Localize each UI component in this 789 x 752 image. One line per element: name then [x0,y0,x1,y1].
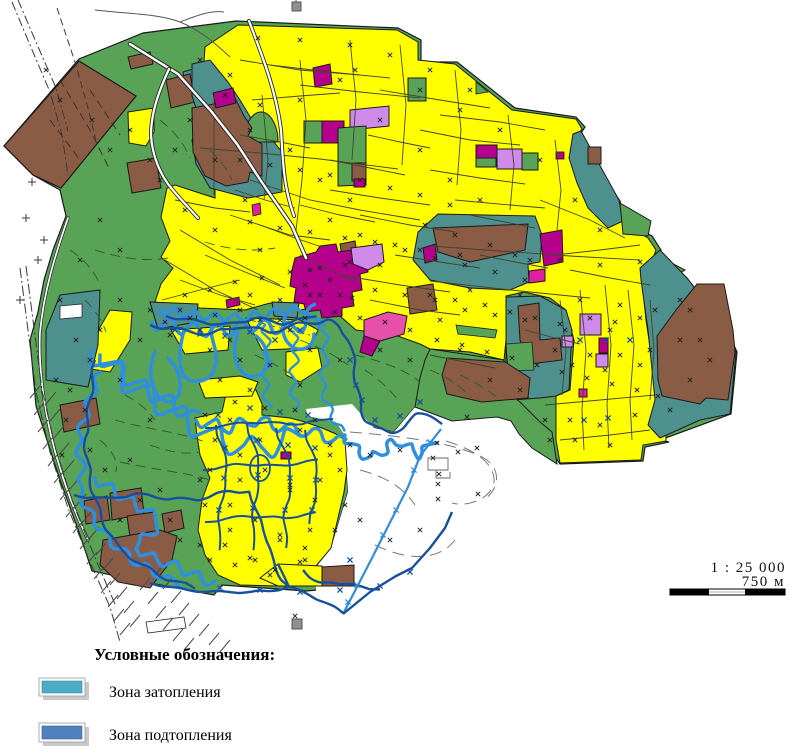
svg-text:Зона подтопления: Зона подтопления [109,727,232,744]
svg-text:750 м: 750 м [742,574,785,590]
svg-text:Условные обозначения:: Условные обозначения: [94,645,275,664]
svg-text:Зона затопления: Зона затопления [109,684,221,701]
